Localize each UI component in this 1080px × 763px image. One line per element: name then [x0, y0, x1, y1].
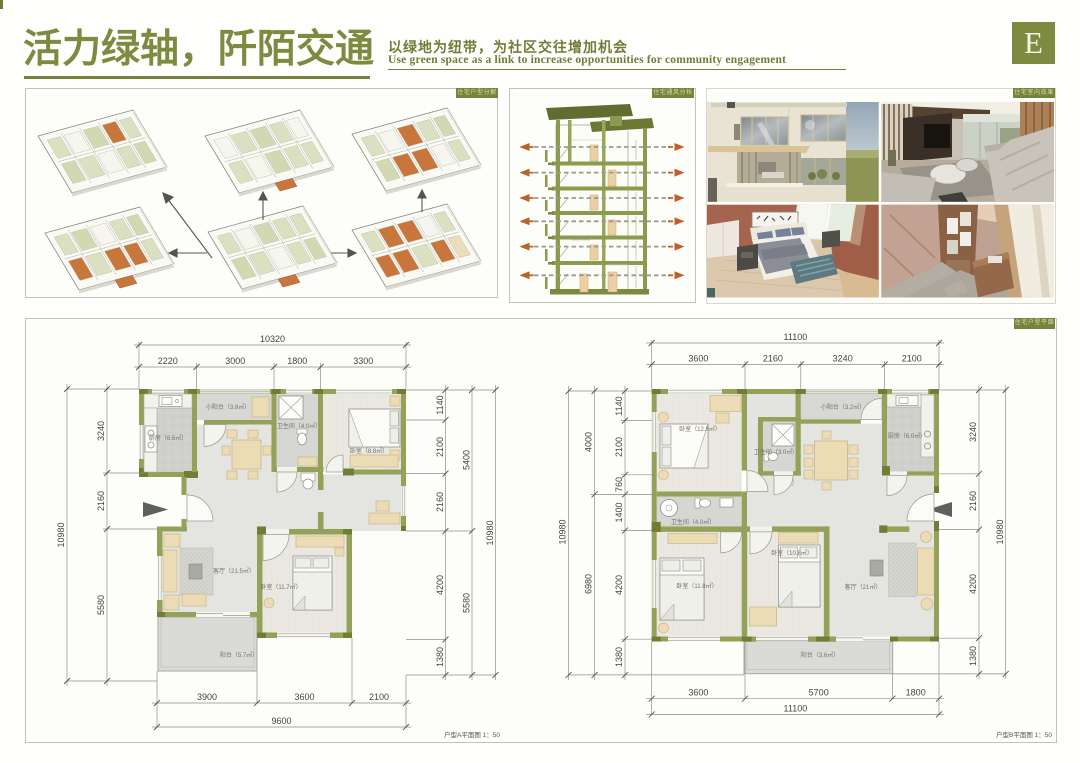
svg-text:4000: 4000: [584, 432, 594, 452]
svg-text:1140: 1140: [435, 395, 445, 414]
svg-text:户型A平面图 1：50: 户型A平面图 1：50: [444, 730, 500, 739]
svg-text:1800: 1800: [906, 688, 926, 698]
svg-text:2100: 2100: [369, 692, 389, 702]
svg-text:卧室（8.8㎡）: 卧室（8.8㎡）: [350, 447, 388, 455]
svg-text:阳台（5.7㎡）: 阳台（5.7㎡）: [220, 651, 258, 659]
svg-text:11100: 11100: [784, 332, 808, 342]
svg-text:5580: 5580: [96, 595, 106, 615]
svg-text:10980: 10980: [558, 519, 568, 544]
svg-text:2100: 2100: [614, 437, 624, 457]
svg-text:10320: 10320: [260, 334, 285, 344]
svg-text:5700: 5700: [809, 688, 829, 698]
svg-text:4200: 4200: [614, 575, 624, 595]
svg-text:3900: 3900: [197, 692, 217, 702]
svg-text:2220: 2220: [158, 356, 178, 366]
svg-text:1380: 1380: [968, 646, 978, 666]
svg-text:厨房（6.0㎡）: 厨房（6.0㎡）: [888, 432, 926, 440]
svg-text:户型B平面图 1：50: 户型B平面图 1：50: [996, 730, 1052, 739]
svg-text:3240: 3240: [968, 422, 978, 442]
svg-text:2100: 2100: [902, 354, 922, 364]
svg-text:10980: 10980: [56, 522, 66, 547]
svg-text:1140: 1140: [614, 396, 624, 415]
svg-text:卧室（10.8㎡）: 卧室（10.8㎡）: [771, 549, 813, 557]
svg-text:1400: 1400: [614, 502, 624, 522]
svg-text:2160: 2160: [968, 491, 978, 511]
svg-text:小阳台（3.2㎡）: 小阳台（3.2㎡）: [821, 403, 865, 411]
svg-text:厨房（6.6㎡）: 厨房（6.6㎡）: [149, 434, 187, 442]
svg-text:760: 760: [614, 477, 624, 492]
svg-text:2160: 2160: [435, 492, 445, 512]
svg-text:卫生间（3.0㎡）: 卫生间（3.0㎡）: [754, 448, 798, 456]
svg-text:卧室（11.7㎡）: 卧室（11.7㎡）: [260, 583, 301, 591]
svg-text:卧室（11.8㎡）: 卧室（11.8㎡）: [676, 582, 717, 590]
svg-text:11100: 11100: [784, 703, 808, 713]
svg-text:卫生间（4.0㎡）: 卫生间（4.0㎡）: [671, 518, 715, 526]
svg-text:10980: 10980: [995, 519, 1005, 544]
svg-text:2160: 2160: [763, 354, 783, 364]
svg-text:2100: 2100: [435, 437, 445, 457]
svg-text:卧室（12.8㎡）: 卧室（12.8㎡）: [679, 425, 721, 433]
svg-text:客厅（21㎡）: 客厅（21㎡）: [845, 583, 882, 591]
svg-text:3240: 3240: [833, 354, 853, 364]
svg-text:3000: 3000: [225, 356, 245, 366]
svg-text:1800: 1800: [287, 356, 307, 366]
svg-text:客厅（21.5㎡）: 客厅（21.5㎡）: [213, 567, 255, 575]
svg-text:小阳台（3.8㎡）: 小阳台（3.8㎡）: [206, 403, 250, 411]
svg-text:5580: 5580: [462, 593, 472, 613]
svg-text:9600: 9600: [271, 716, 291, 726]
svg-text:10980: 10980: [485, 520, 495, 545]
svg-text:2160: 2160: [96, 491, 106, 511]
svg-text:3600: 3600: [688, 354, 708, 364]
svg-text:5400: 5400: [462, 450, 472, 470]
svg-text:3600: 3600: [294, 692, 314, 702]
svg-text:1380: 1380: [435, 647, 445, 667]
svg-text:4200: 4200: [435, 575, 445, 595]
svg-text:卫生间（4.0㎡）: 卫生间（4.0㎡）: [277, 422, 321, 430]
svg-text:4200: 4200: [968, 574, 978, 594]
svg-text:阳台（3.6㎡）: 阳台（3.6㎡）: [801, 651, 839, 659]
svg-text:6980: 6980: [584, 574, 594, 594]
svg-text:3300: 3300: [353, 356, 373, 366]
svg-text:1380: 1380: [614, 647, 624, 667]
svg-text:3600: 3600: [688, 688, 708, 698]
svg-text:3240: 3240: [96, 421, 106, 441]
